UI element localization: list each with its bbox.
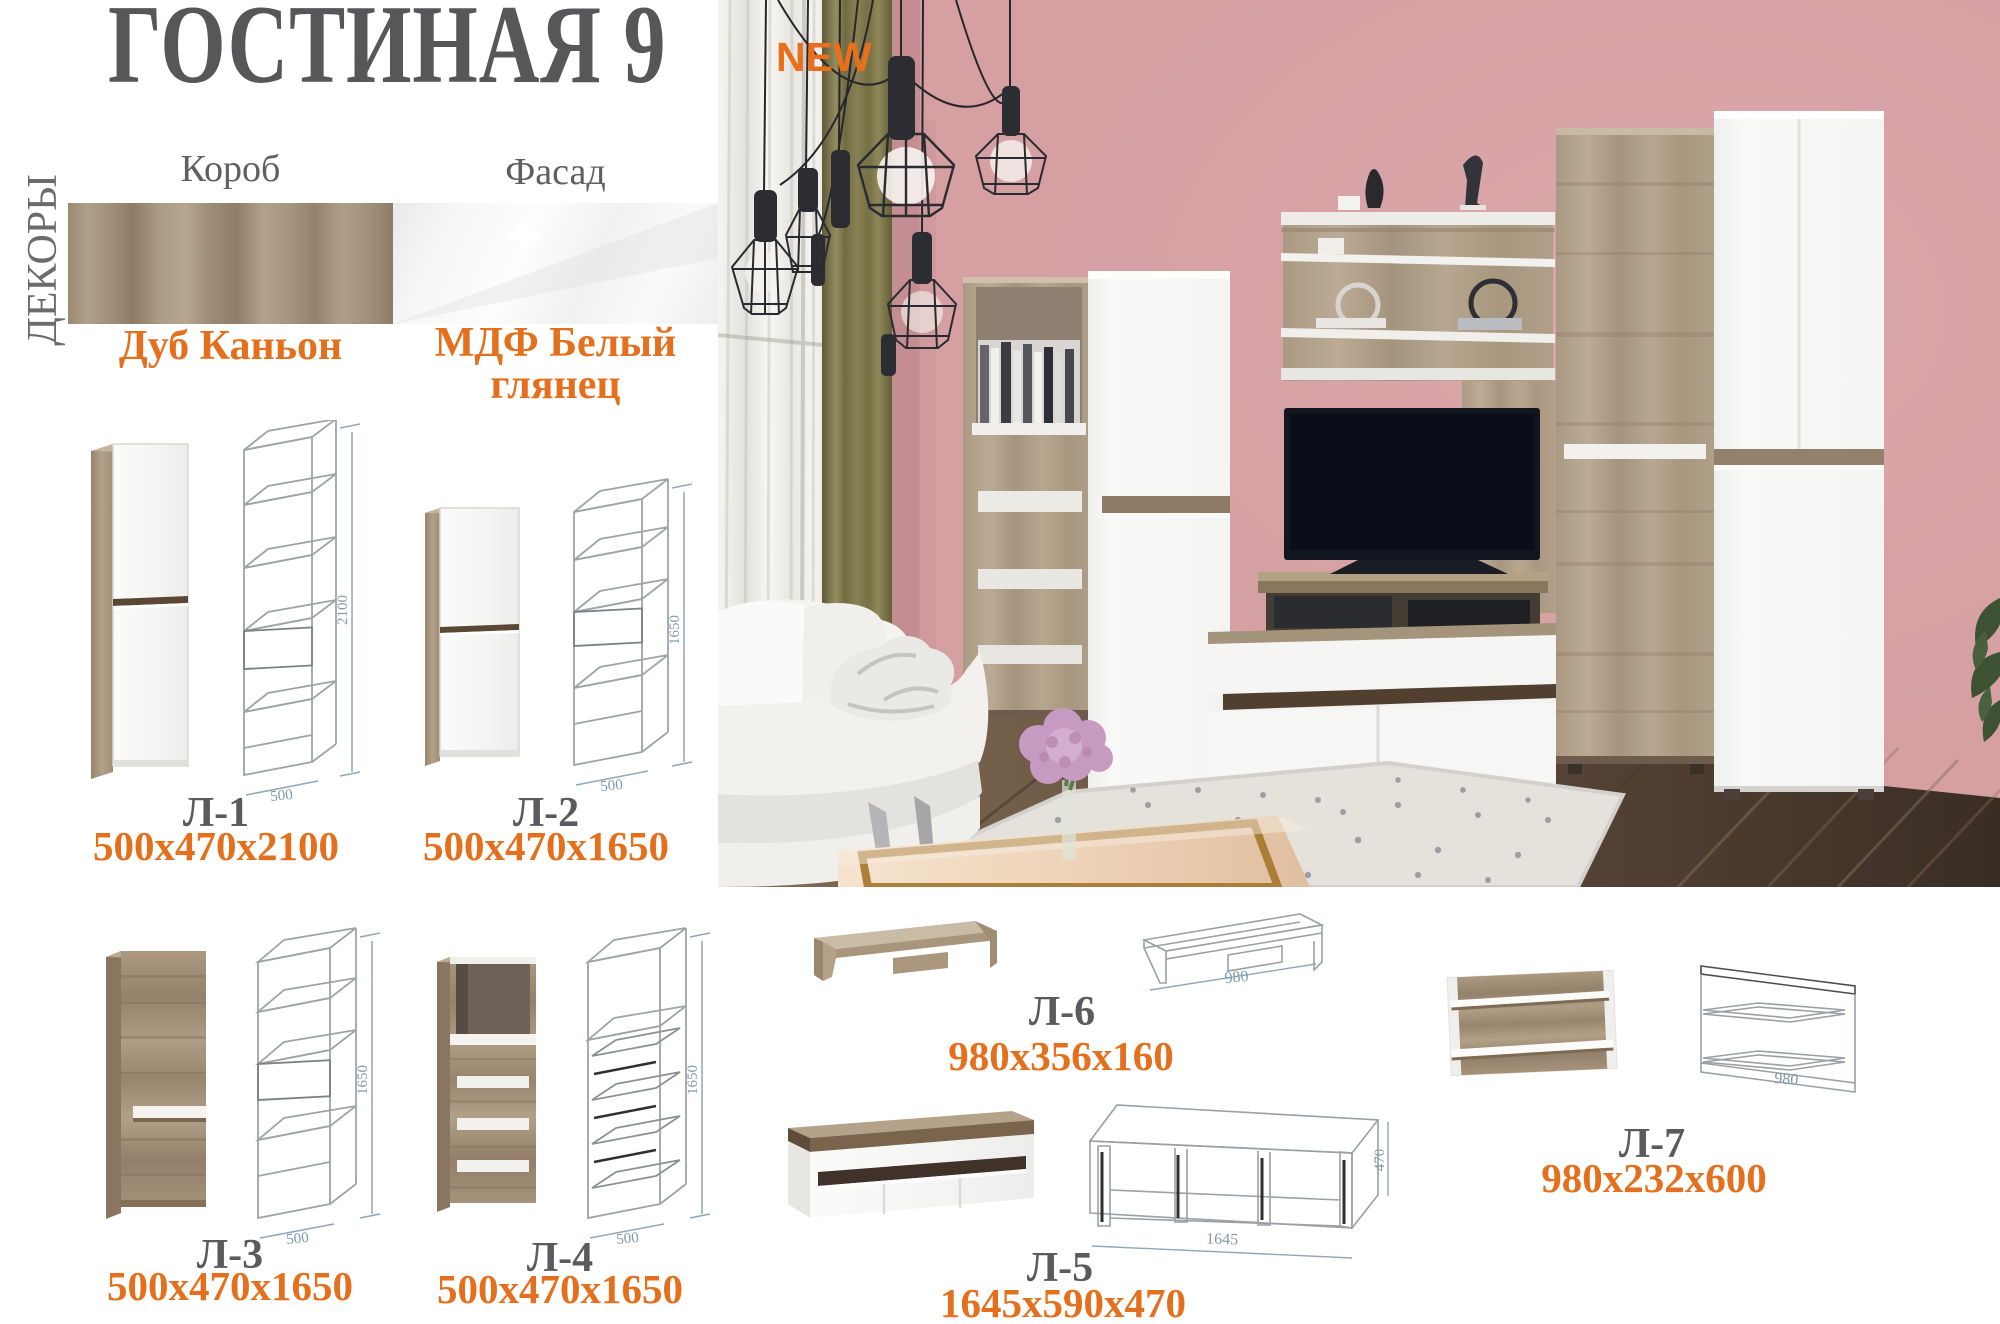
svg-text:980х356х160: 980х356х160 xyxy=(948,1033,1174,1079)
svg-text:500х470х2100: 500х470х2100 xyxy=(93,823,339,869)
svg-text:2100: 2100 xyxy=(335,595,351,625)
svg-text:1645: 1645 xyxy=(1206,1230,1239,1248)
svg-text:500: 500 xyxy=(286,1230,310,1248)
svg-text:500х470х1650: 500х470х1650 xyxy=(107,1263,353,1309)
svg-text:470: 470 xyxy=(1372,1149,1388,1172)
svg-text:Л-6: Л-6 xyxy=(1029,989,1095,1035)
svg-text:1645х590х470: 1645х590х470 xyxy=(940,1280,1186,1324)
svg-text:500х470х1650: 500х470х1650 xyxy=(423,823,669,869)
svg-text:500: 500 xyxy=(600,777,624,795)
svg-text:500х470х1650: 500х470х1650 xyxy=(437,1266,683,1312)
svg-text:1650: 1650 xyxy=(685,1065,701,1095)
svg-text:1650: 1650 xyxy=(667,615,683,645)
svg-text:500: 500 xyxy=(616,1230,640,1248)
svg-text:980: 980 xyxy=(1224,968,1250,987)
svg-text:980: 980 xyxy=(1774,1070,1799,1089)
svg-text:980х232х600: 980х232х600 xyxy=(1541,1155,1767,1201)
svg-text:1650: 1650 xyxy=(355,1065,371,1095)
svg-text:500: 500 xyxy=(270,787,294,805)
